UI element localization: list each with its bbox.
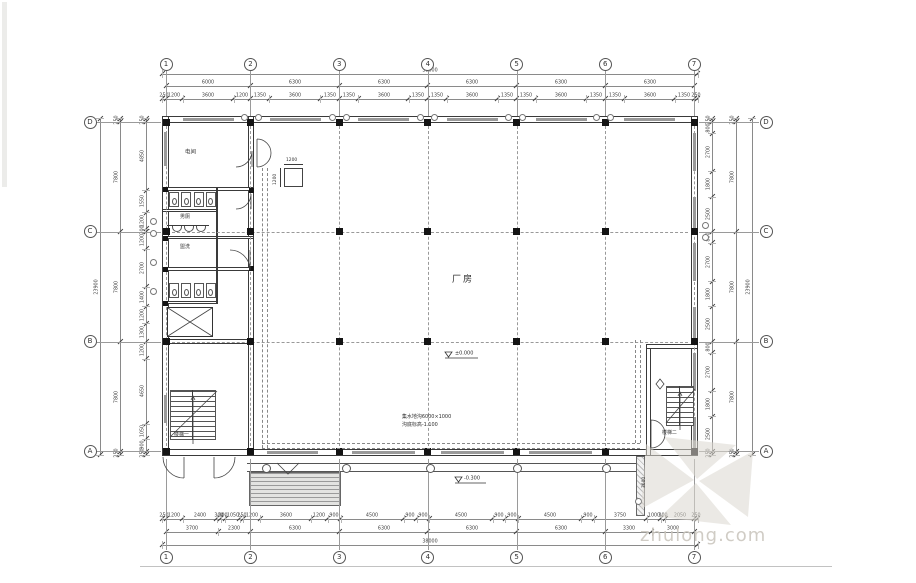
watermark-logo [641, 437, 753, 525]
door-arc-hall-west [257, 139, 271, 167]
floorplan-canvas: 3800060006300630063006300630025012003600… [0, 0, 916, 583]
trench-note-line1: 集水地沟6000×1000 [402, 413, 451, 420]
entrance-leaf-lines [277, 463, 299, 474]
watermark-text: zhulong.com [640, 525, 766, 546]
column-detail-dim-side: 1200 [272, 174, 277, 185]
trench-note-line2: 沟底标高-1.100 [402, 421, 438, 428]
floor-drain-diamond [656, 379, 664, 389]
elevation-porch: -0.300 [464, 475, 480, 481]
column-detail-dim-top: 1200 [286, 157, 297, 162]
door-arc-corridor [230, 250, 250, 270]
door-arc-entrance-left [163, 457, 235, 478]
room-label-mens-toilet: 男厕 [180, 213, 190, 220]
room-label-stair-left: 楼梯一 [174, 431, 189, 438]
room-label-stair-right: 楼梯二 [662, 429, 677, 436]
drawing-overlay [0, 0, 916, 583]
door-arc-power-room [236, 151, 252, 167]
stair-right-break-line [666, 389, 695, 423]
hall-label: 厂房 [452, 272, 474, 285]
room-label-power: 电间 [185, 148, 196, 155]
room-label-wash: 盥洗 [180, 243, 190, 250]
exterior-strip-dim: 3600 [641, 477, 646, 488]
elevation-hall: ±0.000 [455, 350, 473, 356]
stair-right-direction-arrow [678, 392, 682, 430]
stair-left-direction-arrow [191, 396, 195, 444]
door-arc-toilet [236, 194, 251, 209]
shaft-cross-lines [168, 308, 212, 336]
